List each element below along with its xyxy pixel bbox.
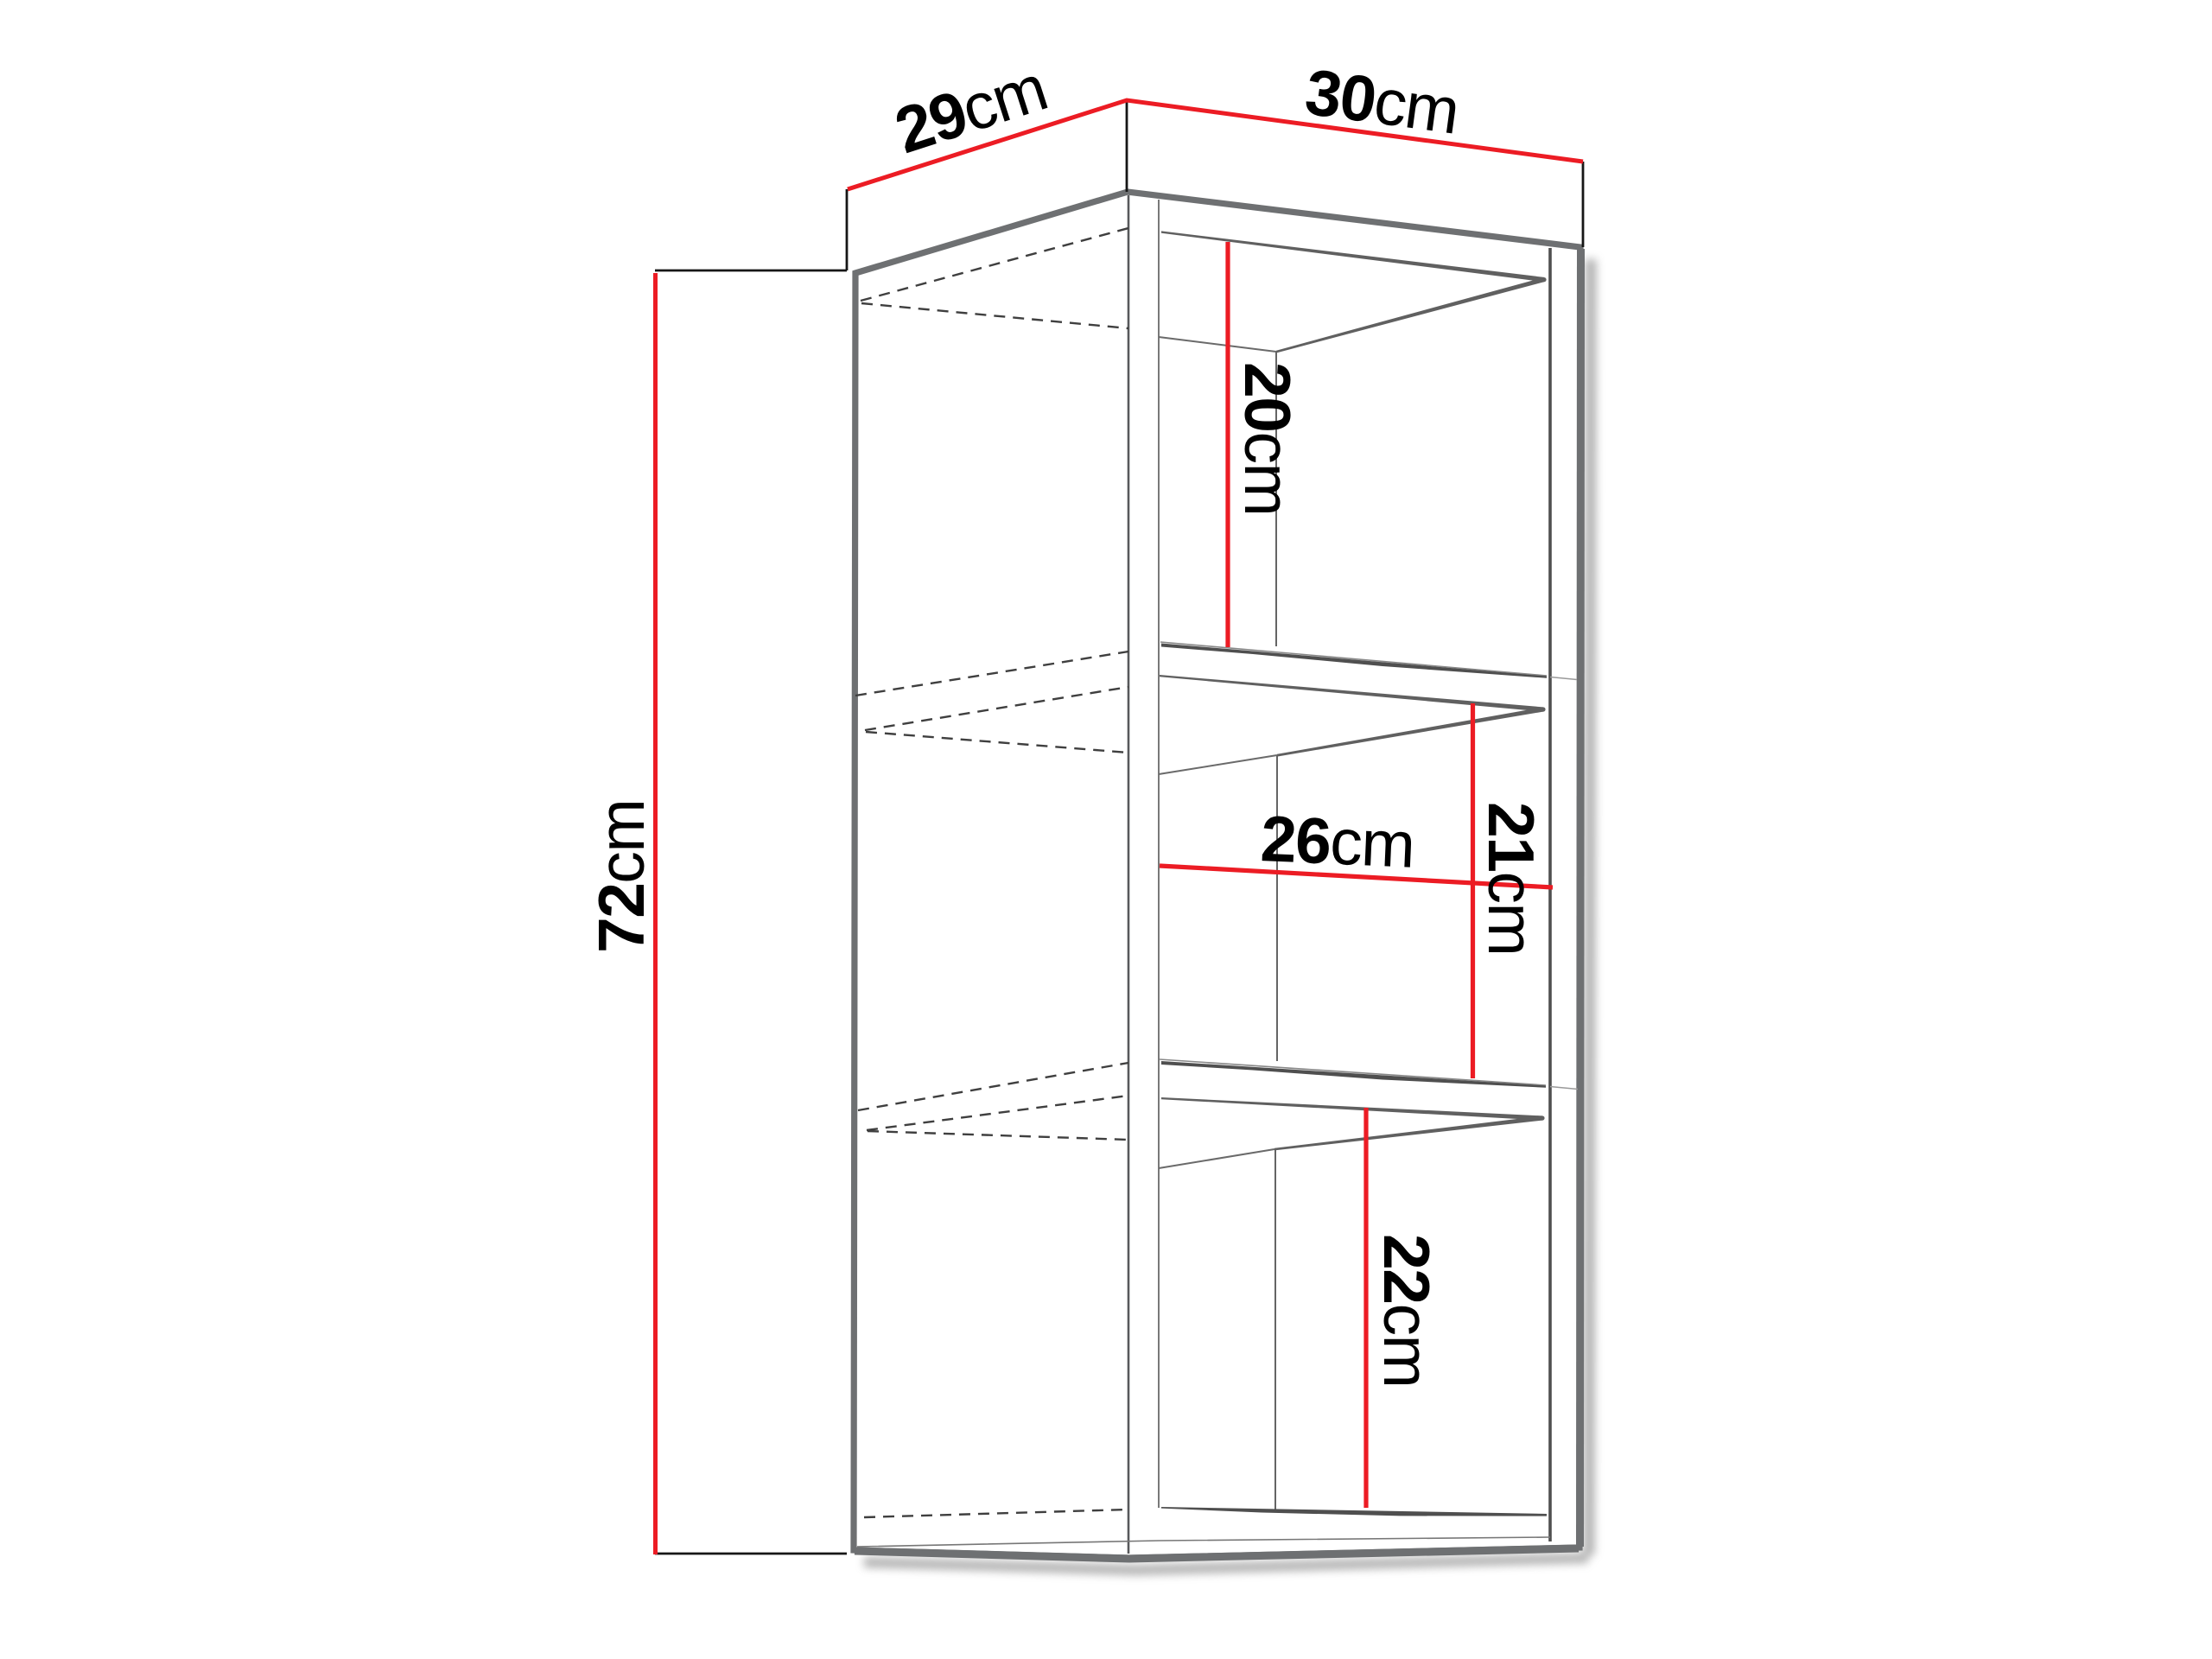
svg-text:72cm: 72cm bbox=[585, 800, 658, 953]
svg-text:20cm: 20cm bbox=[1231, 362, 1304, 515]
svg-text:21cm: 21cm bbox=[1475, 802, 1548, 955]
svg-text:22cm: 22cm bbox=[1370, 1234, 1443, 1387]
svg-text:26cm: 26cm bbox=[1259, 802, 1415, 881]
